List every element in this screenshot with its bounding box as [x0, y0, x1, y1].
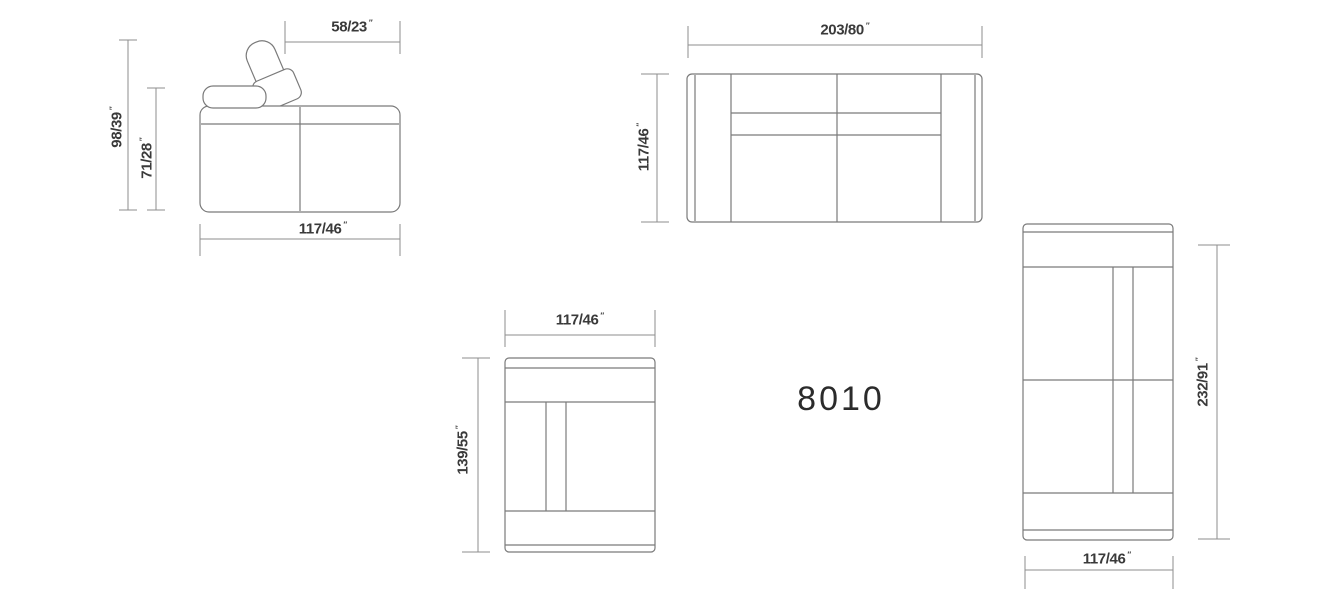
dim-label-seat-depth: 139/55″ — [456, 425, 471, 474]
unit-mark: ″ — [866, 22, 870, 31]
dim-value: 117/46 — [299, 221, 342, 238]
dim-value: 117/46 — [636, 129, 653, 172]
dim-value: 117/46 — [556, 312, 599, 329]
dim-label-chaise-length: 232/91″ — [1196, 357, 1211, 406]
seat-view-outline — [505, 358, 655, 552]
side-view — [119, 21, 400, 256]
dim-value: 98/39 — [109, 112, 126, 148]
seat-outer-frame — [505, 358, 655, 552]
dim-value: 232/91 — [1195, 363, 1212, 406]
dim-label-top-width: 203/80″ — [820, 23, 869, 38]
side-lumbar-cushion — [203, 86, 266, 108]
top-view — [641, 26, 982, 222]
seat-view — [462, 310, 655, 552]
drawing-linework — [0, 0, 1320, 608]
side-view-sofa-outline — [200, 36, 400, 212]
dim-value: 71/28 — [139, 143, 156, 179]
dim-label-chaise-width: 117/46″ — [1083, 552, 1132, 567]
unit-mark: ″ — [109, 106, 118, 110]
technical-drawing-canvas: 58/23″ 98/39″ 71/28″ 117/46″ 203/80″ 117… — [0, 0, 1320, 608]
dim-value: 58/23 — [331, 19, 367, 36]
unit-mark: ″ — [1127, 551, 1131, 560]
dim-label-top-depth: 117/46″ — [637, 123, 652, 172]
unit-mark: ″ — [369, 19, 373, 28]
dim-label-side-headrest-depth: 58/23″ — [331, 20, 372, 35]
dim-label-side-back-height: 71/28″ — [140, 137, 155, 178]
unit-mark: ″ — [636, 123, 645, 127]
unit-mark: ″ — [1195, 357, 1204, 361]
dim-label-seat-width: 117/46″ — [556, 313, 605, 328]
dim-value: 117/46 — [1083, 551, 1126, 568]
dim-value: 203/80 — [820, 22, 863, 39]
top-view-sofa-outline — [687, 74, 982, 222]
dim-label-side-overall-height: 98/39″ — [110, 106, 125, 147]
dim-label-side-depth: 117/46″ — [299, 222, 348, 237]
dim-value: 139/55 — [455, 431, 472, 474]
unit-mark: ″ — [600, 312, 604, 321]
unit-mark: ″ — [455, 425, 464, 429]
unit-mark: ″ — [343, 221, 347, 230]
chaise-view-outline — [1023, 224, 1173, 540]
unit-mark: ″ — [139, 137, 148, 141]
product-code: 8010 — [797, 382, 885, 416]
